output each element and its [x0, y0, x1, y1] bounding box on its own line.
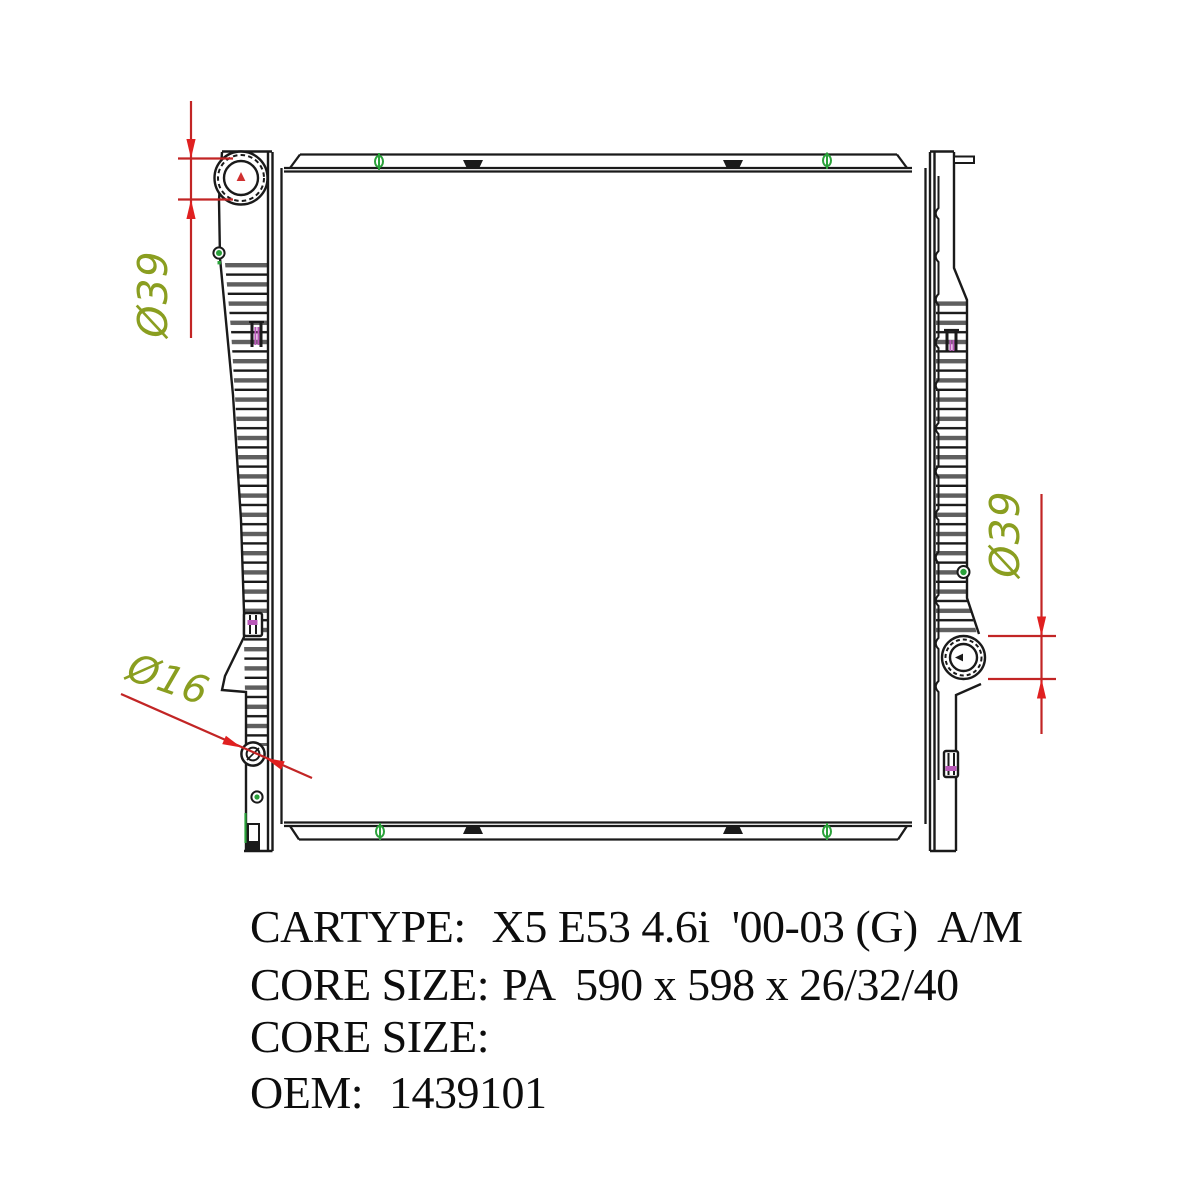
left-tank-clip-lower — [244, 613, 262, 636]
right-tank-profile-lower — [956, 684, 981, 851]
spec-oem-label: OEM: — [250, 1067, 363, 1118]
right-tank-clip-lower — [944, 751, 958, 777]
left-tank — [213, 152, 272, 852]
radiator-core — [282, 153, 926, 841]
dim-label-right: Ø39 — [981, 490, 1029, 579]
radiator-spec-sheet: Ø39 Ø39 Ø16 CARTYPE:X5 E53 4.6i '00-03 (… — [0, 0, 1200, 1200]
left-tank-sensor — [213, 247, 224, 264]
arrow-down-icon — [186, 139, 195, 159]
band-screws — [375, 153, 831, 841]
spec-core-size-label: CORE SIZE: — [250, 959, 489, 1010]
arrow-down-icon — [1037, 617, 1046, 637]
spec-cartype-label: CARTYPE: — [250, 901, 466, 952]
spec-line-core-size: CORE SIZE:PA 590 x 598 x 26/32/40 — [250, 962, 959, 1008]
dimension-right: Ø39 — [981, 490, 1056, 734]
spec-line-oem: OEM:1439101 — [250, 1070, 547, 1116]
arrow-right-icon — [222, 736, 243, 752]
right-tank — [930, 152, 985, 852]
dim-label-top-left: Ø39 — [129, 250, 177, 339]
spec-oem-value: 1439101 — [389, 1070, 547, 1116]
spec-core-size-value: PA 590 x 598 x 26/32/40 — [502, 962, 959, 1008]
spec-line-core-size-2: CORE SIZE: — [250, 1014, 502, 1060]
outlet-port-cap — [942, 636, 985, 679]
spec-core-size-2-label: CORE SIZE: — [250, 1011, 489, 1062]
arrow-up-icon — [1037, 679, 1046, 699]
dim-label-bottom-left: Ø16 — [119, 645, 214, 715]
left-tank-lower-fitting — [251, 791, 262, 802]
right-tank-sensor — [958, 566, 970, 578]
spec-cartype-value: X5 E53 4.6i '00-03 (G) A/M — [492, 904, 1023, 950]
band-clips — [463, 160, 743, 834]
arrow-up-icon — [186, 200, 195, 220]
radiator-technical-drawing: Ø39 Ø39 Ø16 — [0, 0, 1200, 1200]
dimension-bottom-left: Ø16 — [119, 645, 312, 778]
right-tank-top-tab — [954, 157, 974, 164]
dimension-top-left: Ø39 — [129, 101, 233, 340]
dim-leader-line — [121, 694, 312, 778]
drain-plug — [241, 742, 264, 765]
left-tank-foot — [246, 813, 260, 850]
spec-line-cartype: CARTYPE:X5 E53 4.6i '00-03 (G) A/M — [250, 904, 1023, 950]
